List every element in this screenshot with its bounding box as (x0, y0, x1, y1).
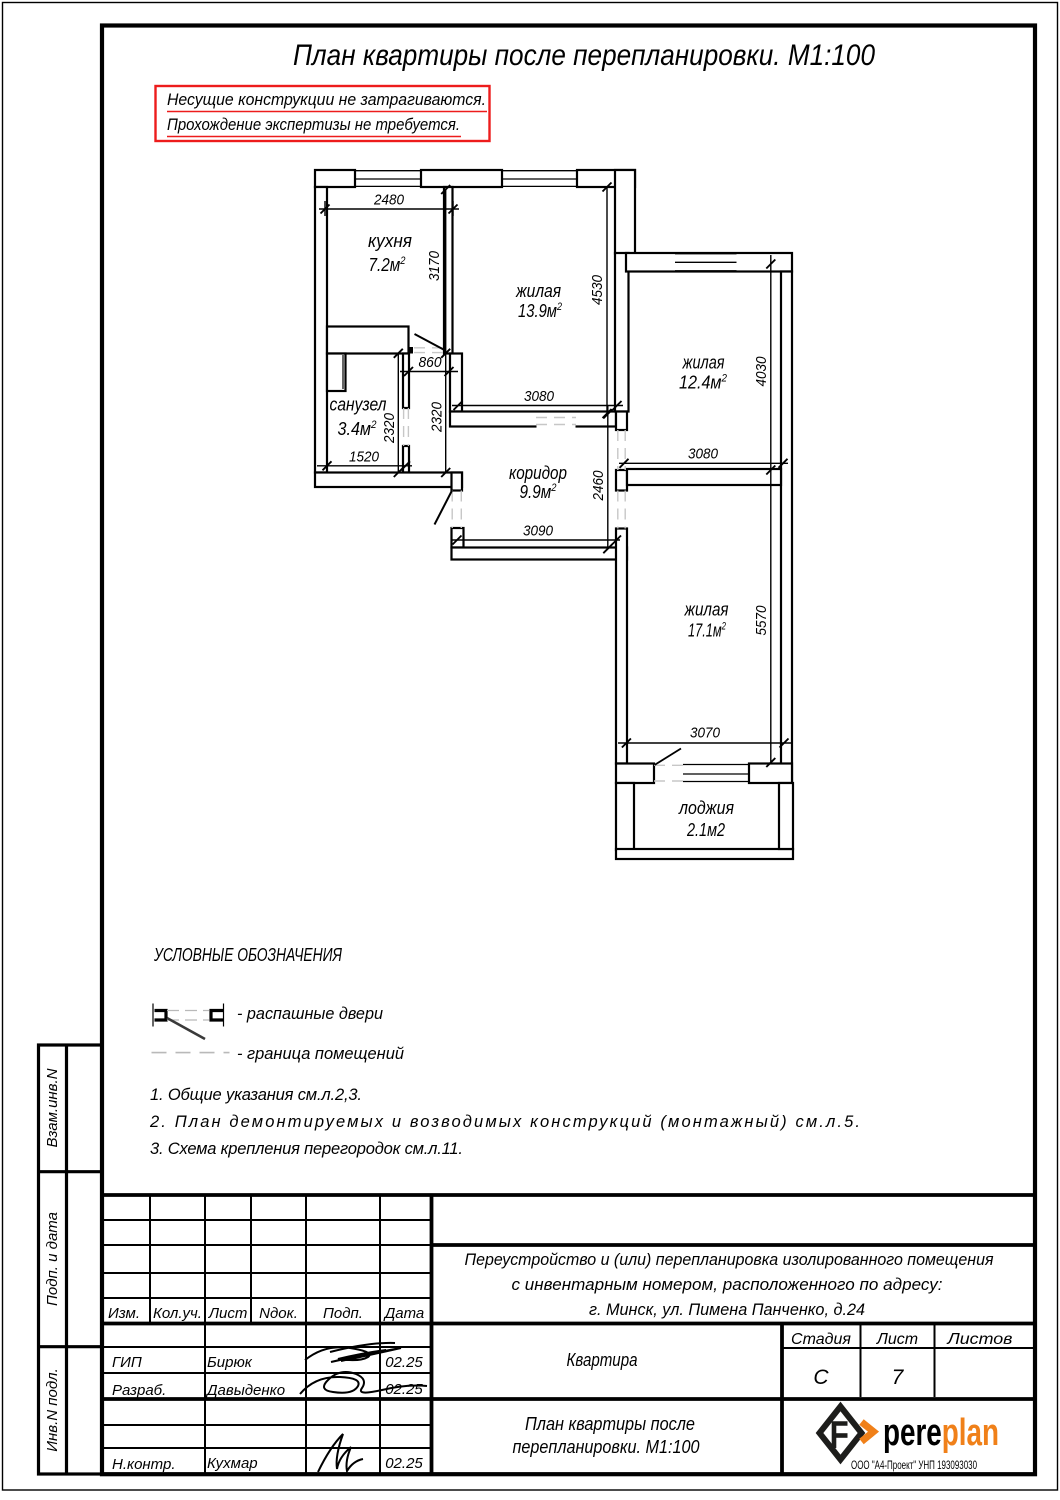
svg-text:3170: 3170 (426, 250, 443, 281)
svg-text:лоджия: лоджия (678, 798, 734, 818)
svg-text:кухня: кухня (368, 231, 412, 251)
svg-text:2460: 2460 (590, 470, 607, 501)
svg-text:13.9м2: 13.9м2 (518, 301, 562, 321)
svg-text:02.25: 02.25 (385, 1455, 423, 1472)
svg-text:2320: 2320 (381, 412, 398, 443)
svg-text:Бирюк: Бирюк (207, 1354, 253, 1371)
svg-text:жилая: жилая (515, 281, 561, 301)
svg-text:перепланировки. М1:100: перепланировки. М1:100 (513, 1437, 700, 1457)
svg-text:9.9м2: 9.9м2 (520, 482, 557, 502)
svg-text:860: 860 (419, 354, 443, 371)
svg-text:- распашные двери: - распашные двери (237, 1005, 383, 1023)
svg-text:- граница помещений: - граница помещений (237, 1045, 404, 1063)
svg-text:жилая: жилая (682, 353, 725, 373)
svg-text:Инв.N подл.: Инв.N подл. (44, 1368, 61, 1452)
svg-text:3090: 3090 (523, 523, 554, 540)
svg-text:2. План демонтируемых и возво: 2. План демонтируемых и возводимых конст… (149, 1113, 860, 1131)
svg-text:1. Общие указания см.л.2,3.: 1. Общие указания см.л.2,3. (150, 1086, 362, 1104)
svg-text:Взам.инв.N: Взам.инв.N (44, 1068, 61, 1147)
svg-text:С: С (813, 1366, 829, 1389)
svg-text:Давыденко: Давыденко (205, 1382, 285, 1399)
svg-text:Листов: Листов (946, 1331, 1012, 1348)
svg-text:УСЛОВНЫЕ ОБОЗНАЧЕНИЯ: УСЛОВНЫЕ ОБОЗНАЧЕНИЯ (153, 945, 342, 965)
svg-text:Подп. и дата: Подп. и дата (44, 1212, 61, 1306)
svg-text:План квартиры после: План квартиры после (525, 1414, 695, 1434)
svg-text:жилая: жилая (684, 600, 729, 620)
svg-text:12.4м2: 12.4м2 (679, 373, 727, 393)
svg-text:2480: 2480 (373, 192, 404, 209)
svg-text:4030: 4030 (753, 356, 770, 387)
svg-text:Стадия: Стадия (791, 1331, 851, 1348)
svg-text:2.1м2: 2.1м2 (686, 820, 725, 840)
svg-text:02.25: 02.25 (385, 1381, 423, 1398)
svg-text:7.2м2: 7.2м2 (369, 255, 406, 275)
svg-text:коридор: коридор (509, 463, 567, 483)
svg-text:3. Схема крепления перегородо: 3. Схема крепления перегородок см.л.11. (150, 1140, 463, 1158)
svg-text:Н.контр.: Н.контр. (112, 1456, 176, 1473)
svg-text:Лист: Лист (208, 1305, 248, 1322)
svg-text:1520: 1520 (349, 449, 380, 466)
svg-text:Разраб.: Разраб. (112, 1382, 166, 1399)
svg-text:с инвентарным номером, располо: с инвентарным номером, расположенного по… (512, 1275, 943, 1294)
svg-text:Несущие конструкции не затраги: Несущие конструкции не затрагиваются. (167, 91, 486, 109)
svg-text:4530: 4530 (589, 274, 606, 305)
svg-text:Подп.: Подп. (323, 1305, 363, 1322)
svg-text:17.1м2: 17.1м2 (688, 621, 726, 641)
svg-text:Лист: Лист (876, 1331, 918, 1348)
svg-text:Nдок.: Nдок. (259, 1305, 298, 1322)
svg-text:План квартиры после переплани: План квартиры после перепланировки. М1:1… (293, 39, 875, 72)
svg-text:ООО "А4-Проект" УНП 193093030: ООО "А4-Проект" УНП 193093030 (851, 1458, 977, 1472)
svg-text:Кухмар: Кухмар (207, 1455, 258, 1472)
svg-text:Квартира: Квартира (567, 1350, 638, 1370)
svg-text:Изм.: Изм. (108, 1305, 140, 1322)
svg-text:3080: 3080 (688, 446, 719, 463)
svg-text:Кол.уч.: Кол.уч. (153, 1305, 202, 1322)
svg-text:г. Минск, ул. Пимена Панченко,: г. Минск, ул. Пимена Панченко, д.24 (589, 1300, 865, 1319)
svg-text:3080: 3080 (524, 388, 555, 405)
svg-text:7: 7 (892, 1366, 905, 1389)
svg-text:2320: 2320 (429, 401, 446, 432)
svg-text:5570: 5570 (753, 605, 770, 636)
svg-text:Дата: Дата (383, 1305, 425, 1322)
svg-text:Переустройство и (или) перепла: Переустройство и (или) перепланировка из… (465, 1250, 994, 1269)
svg-text:3.4м2: 3.4м2 (338, 419, 377, 439)
svg-text:3070: 3070 (690, 725, 721, 742)
svg-text:санузел: санузел (330, 395, 387, 415)
svg-text:Прохождение экспертизы не треб: Прохождение экспертизы не требуется. (167, 116, 460, 134)
svg-text:02.25: 02.25 (385, 1354, 423, 1371)
svg-text:ГИП: ГИП (112, 1354, 142, 1371)
svg-text:pereplan: pereplan (883, 1411, 999, 1454)
